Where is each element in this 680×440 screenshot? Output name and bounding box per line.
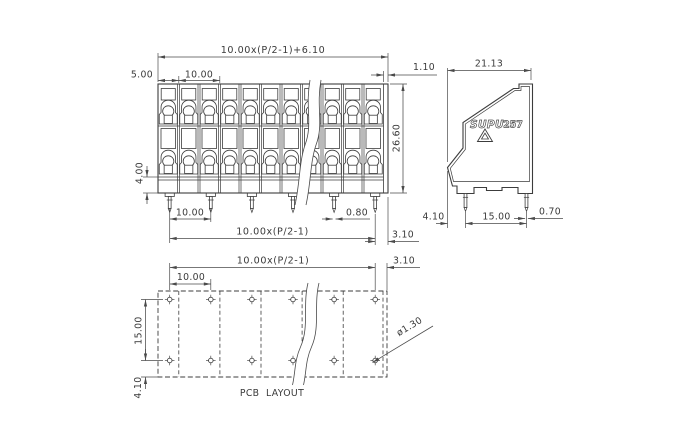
pin-tip bbox=[464, 208, 467, 212]
arrowhead bbox=[518, 217, 525, 220]
pin-tip bbox=[525, 208, 528, 212]
housing-window bbox=[161, 129, 176, 149]
arrowhead bbox=[448, 69, 455, 72]
arrowhead bbox=[377, 73, 384, 76]
arrowhead bbox=[144, 377, 147, 384]
wire-entry-hole bbox=[264, 89, 278, 101]
pin-tip bbox=[333, 209, 336, 213]
arrowhead bbox=[368, 266, 375, 269]
housing-window bbox=[366, 129, 381, 149]
arrowhead bbox=[204, 217, 211, 220]
wire-entry-hole bbox=[284, 89, 298, 101]
solder-pin bbox=[209, 197, 212, 209]
mounting-hole bbox=[332, 297, 337, 302]
solder-pin bbox=[251, 197, 254, 209]
arrowhead bbox=[466, 222, 473, 225]
side-inner-outline bbox=[450, 87, 529, 182]
dim-front-pitch-top: 10.00 bbox=[185, 70, 213, 81]
pcb-layout-title: PCB LAYOUT bbox=[240, 388, 304, 399]
arrowhead bbox=[388, 73, 395, 76]
pcb-layout-view bbox=[158, 283, 387, 385]
clamp-wire-slot bbox=[328, 115, 336, 123]
model-number-text: 257 bbox=[503, 120, 523, 131]
housing-window bbox=[264, 129, 279, 149]
dim-pcb-hole-diameter: ø1.30 bbox=[395, 315, 425, 339]
solder-pin bbox=[168, 197, 171, 209]
arrowhead bbox=[524, 69, 531, 72]
arrowhead bbox=[528, 217, 535, 220]
solder-pin bbox=[464, 194, 467, 208]
arrowhead bbox=[145, 193, 148, 200]
arrowhead bbox=[144, 354, 147, 361]
clamp-wire-slot bbox=[369, 115, 377, 123]
dim-pcb-edge: 3.10 bbox=[393, 256, 415, 267]
arrowhead bbox=[336, 217, 343, 220]
arrowhead bbox=[158, 55, 165, 58]
dim-front-total-width: 10.00x(P/2-1)+6.10 bbox=[221, 45, 326, 56]
housing-window bbox=[243, 129, 258, 149]
arrowhead bbox=[520, 222, 527, 225]
dim-pcb-pitch: 10.00 bbox=[177, 272, 205, 283]
clamp-wire-slot bbox=[164, 115, 172, 123]
clamp-wire-slot bbox=[185, 165, 193, 173]
housing-window bbox=[284, 129, 299, 149]
mounting-hole bbox=[291, 297, 296, 302]
mounting-hole bbox=[167, 358, 172, 363]
wire-entry-hole bbox=[366, 89, 380, 101]
solder-pin bbox=[333, 197, 336, 209]
clamp-wire-slot bbox=[246, 165, 254, 173]
clamp-wire-slot bbox=[287, 165, 295, 173]
clamp-wire-slot bbox=[349, 115, 357, 123]
dim-side-pin-width: 0.70 bbox=[539, 207, 561, 218]
clamp-wire-slot bbox=[267, 115, 275, 123]
arrowhead bbox=[368, 237, 375, 240]
dim-front-pin-edge: 3.10 bbox=[392, 230, 414, 241]
housing-window bbox=[182, 129, 197, 149]
dim-pcb-span: 10.00x(P/2-1) bbox=[237, 256, 309, 267]
wire-entry-hole bbox=[325, 89, 339, 101]
pin-tip bbox=[292, 209, 295, 213]
wire-entry-hole bbox=[223, 89, 237, 101]
dim-front-pin-width: 0.80 bbox=[346, 208, 368, 219]
dim-side-row-spacing: 15.00 bbox=[482, 212, 510, 223]
clamp-wire-slot bbox=[328, 165, 336, 173]
wire-entry-hole bbox=[346, 89, 360, 101]
clamp-wire-slot bbox=[185, 115, 193, 123]
arrowhead bbox=[326, 217, 333, 220]
clamp-wire-slot bbox=[205, 165, 213, 173]
mounting-hole bbox=[373, 297, 378, 302]
wire-entry-hole bbox=[182, 89, 196, 101]
housing-window bbox=[346, 129, 361, 149]
clamp-wire-slot bbox=[369, 165, 377, 173]
clamp-wire-slot bbox=[246, 115, 254, 123]
certification-triangle-inner-icon bbox=[482, 133, 489, 139]
mounting-hole bbox=[291, 358, 296, 363]
mounting-hole bbox=[332, 358, 337, 363]
housing-window bbox=[202, 129, 217, 149]
arrowhead bbox=[170, 282, 177, 285]
mounting-hole bbox=[250, 358, 255, 363]
arrowhead bbox=[170, 237, 177, 240]
mounting-hole bbox=[167, 297, 172, 302]
arrowhead bbox=[401, 186, 404, 193]
mounting-hole bbox=[250, 297, 255, 302]
solder-pin bbox=[374, 197, 377, 209]
arrowhead bbox=[172, 79, 179, 82]
drawing-svg: 10.00x(P/2-1)+6.10 5.00 10.00 1.10 26.60… bbox=[0, 0, 680, 440]
dim-front-pin-span: 10.00x(P/2-1) bbox=[236, 227, 308, 238]
arrowhead bbox=[368, 240, 375, 243]
solder-pin bbox=[292, 197, 295, 209]
mounting-hole bbox=[209, 358, 214, 363]
solder-pin bbox=[525, 194, 528, 208]
side-body-outline bbox=[448, 84, 533, 194]
dim-front-height: 26.60 bbox=[392, 124, 403, 152]
technical-drawing-page: 10.00x(P/2-1)+6.10 5.00 10.00 1.10 26.60… bbox=[0, 0, 680, 440]
dim-front-pin-pitch: 10.00 bbox=[176, 208, 204, 219]
pcb-outline bbox=[158, 291, 387, 377]
clamp-wire-slot bbox=[226, 165, 234, 173]
dim-pcb-edge-bottom: 4.10 bbox=[133, 376, 144, 398]
arrowhead bbox=[401, 84, 404, 91]
wire-entry-hole bbox=[243, 89, 257, 101]
wire-entry-hole bbox=[161, 89, 175, 101]
clamp-wire-slot bbox=[164, 165, 172, 173]
clamp-wire-slot bbox=[349, 165, 357, 173]
side-view bbox=[448, 84, 533, 212]
arrowhead bbox=[170, 266, 177, 269]
wire-entry-hole bbox=[202, 89, 216, 101]
brand-logo-text: SUPU bbox=[470, 119, 504, 131]
dim-pcb-row-spacing: 15.00 bbox=[134, 316, 145, 344]
clamp-wire-slot bbox=[267, 165, 275, 173]
arrowhead bbox=[158, 79, 165, 82]
pin-tip bbox=[251, 209, 254, 213]
dim-side-depth: 21.13 bbox=[475, 59, 503, 70]
mounting-hole bbox=[209, 297, 214, 302]
arrowhead bbox=[213, 79, 220, 82]
clamp-wire-slot bbox=[226, 115, 234, 123]
dim-front-lead-offset: 1.10 bbox=[413, 62, 435, 73]
housing-window bbox=[325, 129, 340, 149]
dim-side-front-offset: 4.10 bbox=[422, 212, 444, 223]
dim-front-skirt-height: 4.00 bbox=[135, 162, 146, 184]
housing-window bbox=[223, 129, 238, 149]
front-view bbox=[158, 80, 388, 213]
arrowhead bbox=[145, 170, 148, 177]
clamp-wire-slot bbox=[205, 115, 213, 123]
arrowhead bbox=[381, 55, 388, 58]
arrowhead bbox=[144, 300, 147, 307]
dim-front-edge-offset: 5.00 bbox=[131, 70, 153, 81]
clamp-wire-slot bbox=[287, 115, 295, 123]
pin-tip bbox=[374, 209, 377, 213]
